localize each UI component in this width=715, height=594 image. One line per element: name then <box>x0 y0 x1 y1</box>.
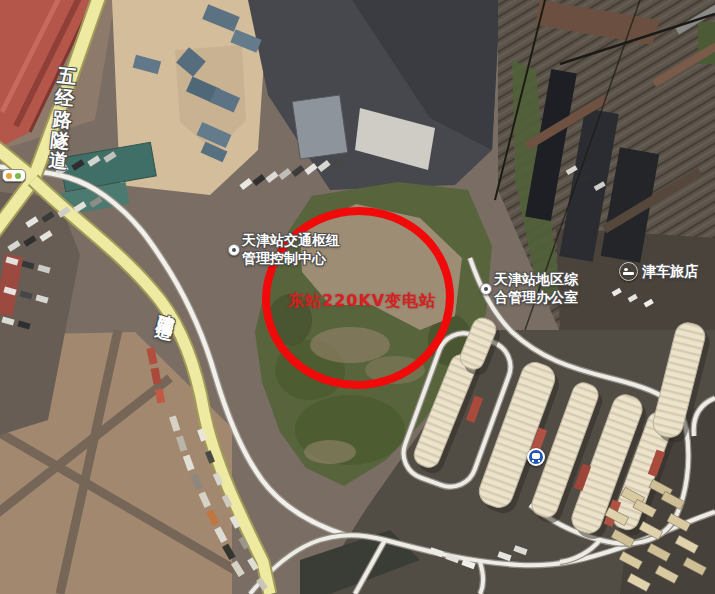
annotation-text-substation: 东站220KV变电站 <box>288 291 436 312</box>
poi-label-line: 天津站地区综 <box>494 270 578 288</box>
poi-label-transport-hub[interactable]: 天津站交通枢纽 管理控制中心 <box>242 231 340 267</box>
poi-dot-icon[interactable] <box>228 244 240 256</box>
traffic-light-icon <box>2 169 26 182</box>
grey-building <box>292 95 348 159</box>
hotel-bed-icon[interactable] <box>619 262 638 281</box>
poi-label-hotel[interactable]: 津车旅店 <box>642 263 698 281</box>
poi-label-line: 天津站交通枢纽 <box>242 231 340 249</box>
bus-station-icon[interactable] <box>527 448 545 466</box>
poi-label-line: 合管理办公室 <box>494 288 578 306</box>
dirt-streak <box>310 327 390 363</box>
poi-dot-icon[interactable] <box>480 283 492 295</box>
poi-label-management-office[interactable]: 天津站地区综 合管理办公室 <box>494 270 578 306</box>
satellite-map[interactable]: 五经路隧道 建国道 天津站交通枢纽 管理控制中心 天津站地区综 合管理办公室 津… <box>0 0 715 594</box>
dirt-streak <box>304 440 356 464</box>
poi-label-line: 管理控制中心 <box>242 249 340 267</box>
